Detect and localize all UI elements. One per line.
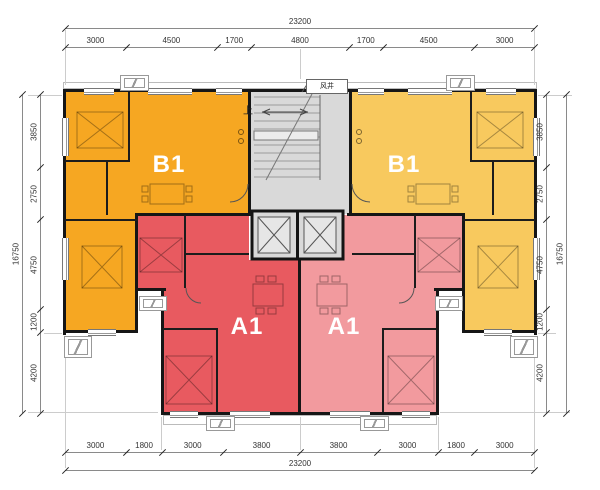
window <box>402 411 430 418</box>
partition-wall <box>462 219 535 221</box>
partition-wall <box>470 92 472 162</box>
partition-wall <box>184 215 186 288</box>
wall <box>347 213 465 216</box>
partition-wall <box>186 253 249 255</box>
wall <box>135 213 253 216</box>
dimension-bottom-segments: 30001800300038003800300018003000 <box>65 444 535 456</box>
ac-platform-icon <box>64 336 92 358</box>
partition-wall <box>128 92 130 162</box>
partition-wall <box>65 219 138 221</box>
window <box>484 329 512 336</box>
ac-platform-icon <box>360 416 389 431</box>
dimension-top-segments: 3000450017004800170045003000 <box>65 39 535 51</box>
partition-wall <box>382 328 436 330</box>
dimension-bottom-total: 23200 <box>65 462 535 474</box>
wall <box>135 213 138 333</box>
extension-line <box>440 412 570 413</box>
unit-b1-right-wing <box>462 92 535 333</box>
extension-line <box>300 49 301 79</box>
partition-wall <box>65 160 130 162</box>
dimension-right-total: 16750 <box>558 95 570 413</box>
window <box>148 88 192 95</box>
wall <box>434 288 465 291</box>
dimension-right-segments: 38502750475012004200 <box>538 95 550 413</box>
partition-wall <box>414 215 416 288</box>
floor-plan-canvas: B1 B1 A1 A1 上 风井 23200 30004500170048001… <box>0 0 600 490</box>
dimension-top-total: 23200 <box>65 20 535 32</box>
ac-platform-icon <box>446 75 475 91</box>
ac-platform-icon <box>510 336 538 358</box>
extension-line <box>44 333 62 334</box>
ac-platform-icon <box>139 296 167 311</box>
dimension-left-segments: 38502750475012004200 <box>32 95 44 413</box>
unit-label-a1-left: A1 <box>217 314 277 340</box>
elevators-icon <box>252 211 343 259</box>
window <box>62 238 69 280</box>
partition-wall <box>492 162 494 215</box>
window <box>84 88 114 95</box>
dimension-left-total: 16750 <box>14 95 26 413</box>
stair-core-area <box>250 92 350 214</box>
wall <box>462 213 465 333</box>
window <box>62 118 69 156</box>
window <box>170 411 198 418</box>
window <box>486 88 516 95</box>
extension-line <box>28 412 158 413</box>
partition-wall <box>163 328 218 330</box>
window <box>216 88 242 95</box>
wall <box>349 92 352 214</box>
stair-up-label: 上 <box>243 102 253 117</box>
partition-wall <box>352 253 414 255</box>
unit-label-b1-right: B1 <box>374 152 434 178</box>
window <box>88 329 116 336</box>
wall <box>298 259 301 415</box>
window <box>230 411 270 418</box>
partition-wall <box>216 330 218 412</box>
partition-wall <box>106 162 108 215</box>
ac-platform-icon <box>120 75 149 91</box>
partition-wall <box>382 330 384 412</box>
unit-label-a1-right: A1 <box>314 314 374 340</box>
window <box>358 88 384 95</box>
ac-platform-icon <box>206 416 235 431</box>
unit-label-b1-left: B1 <box>139 152 199 178</box>
air-shaft-label: 风井 <box>306 79 348 94</box>
ac-platform-icon <box>435 296 463 311</box>
partition-wall <box>470 160 535 162</box>
